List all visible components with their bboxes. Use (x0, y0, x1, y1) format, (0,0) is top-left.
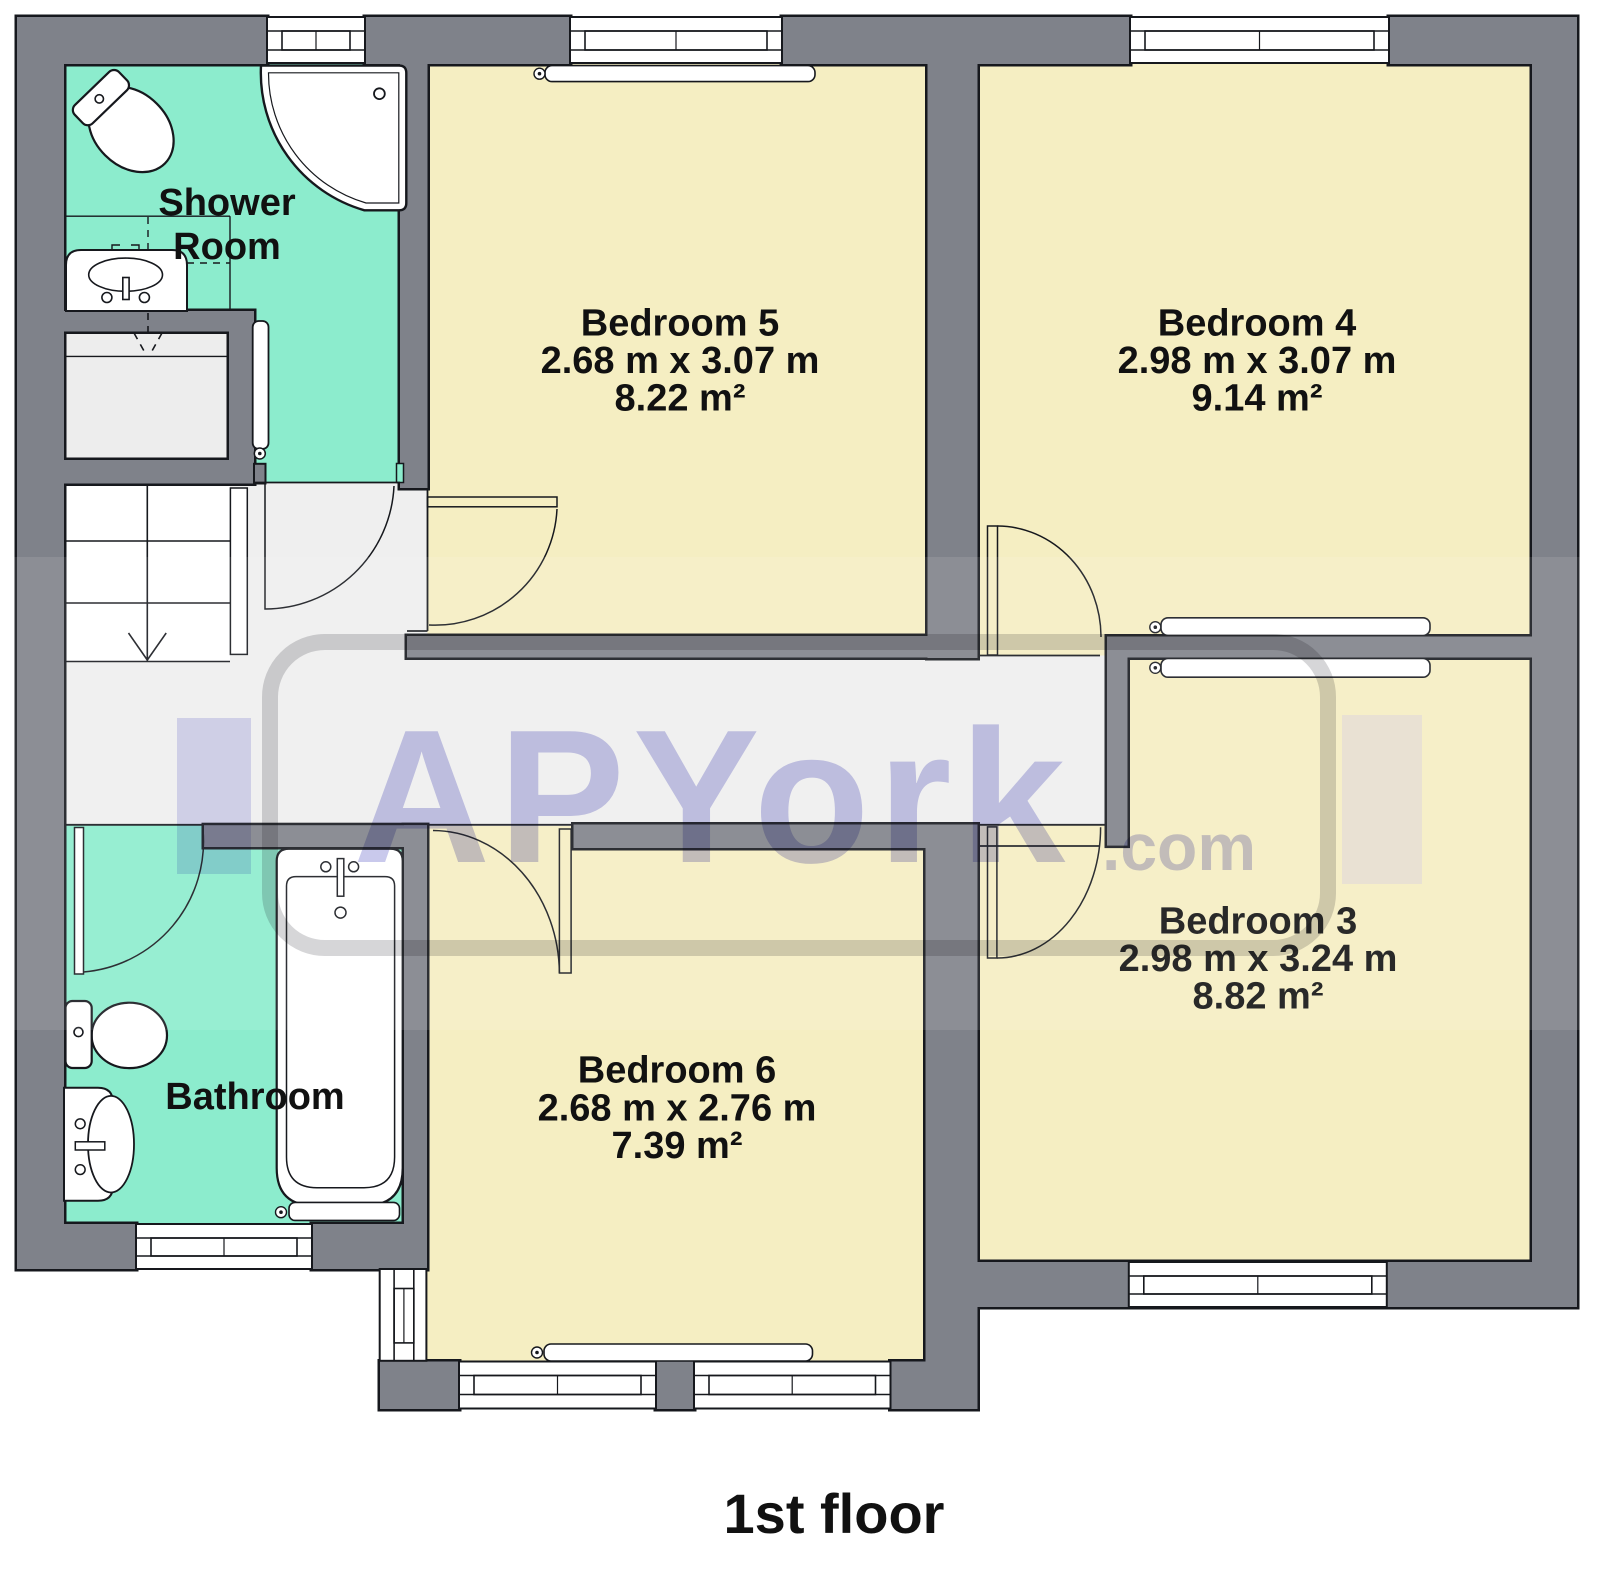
svg-text:.com: .com (1102, 810, 1256, 884)
svg-text:APYork: APYork (353, 691, 1073, 903)
